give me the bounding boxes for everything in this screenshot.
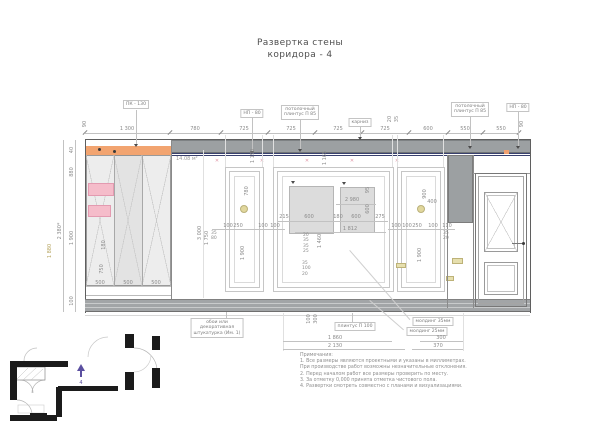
dim-label: 110 xyxy=(442,223,452,229)
pier-edge xyxy=(473,155,474,308)
leader-arrow xyxy=(342,182,346,185)
door-handle-leader xyxy=(512,243,522,244)
callout-np80-right: НП - 80 xyxy=(506,103,529,112)
callout-molding35: молдинг 35мм xyxy=(412,317,453,326)
rod-bracket-mark xyxy=(98,148,101,151)
dim-label: 250 xyxy=(233,223,243,229)
wall-area-label: 14.08 м² xyxy=(176,156,198,162)
wardrobe-door xyxy=(114,155,142,286)
mirror-panel xyxy=(289,186,334,234)
curtain-hook-icon: ✕ xyxy=(215,159,219,164)
dim-label: 900 xyxy=(422,189,428,199)
dim-label: 1 900 xyxy=(240,246,246,260)
dim-label: 100 xyxy=(428,223,438,229)
dim-label: 100 xyxy=(402,223,412,229)
view-direction-arrow xyxy=(77,364,85,371)
wall-right-edge xyxy=(530,139,531,313)
dim-label: 370 xyxy=(433,343,443,349)
dim-label: 725 xyxy=(239,126,249,132)
dim-label: 1 165 xyxy=(322,151,328,165)
curtain-hook-icon: ✕ xyxy=(350,159,354,164)
dim-label: 1 190 xyxy=(250,149,256,163)
rod-bracket-mark xyxy=(113,150,116,153)
dim-label: 600 xyxy=(351,214,361,220)
door-lower-panel xyxy=(484,262,518,295)
dim-label: 500 xyxy=(151,280,161,286)
dim-label: 1 900 xyxy=(69,231,75,245)
callout-np80: НП - 80 xyxy=(240,109,263,118)
wardrobe-plinth-line xyxy=(86,295,171,296)
notes-block: Примечания: 1. Все размеры являются прое… xyxy=(300,353,467,390)
dim-label: 215 xyxy=(279,214,289,220)
dim-label: 725 xyxy=(286,126,296,132)
dim-stack: 35 20 xyxy=(443,231,449,242)
dim-label: 1 460 xyxy=(317,234,323,248)
dim-stack: 35 100 20 xyxy=(302,261,311,277)
dim-label: 95 xyxy=(365,187,371,193)
dim-label: 90 xyxy=(82,121,88,127)
note-line: При производстве работ возможны незначит… xyxy=(300,365,467,371)
door-divider xyxy=(114,155,115,286)
dim-label: 300 xyxy=(313,314,319,324)
dim-label: 90 xyxy=(519,121,525,127)
dim-label: 750 xyxy=(99,264,105,274)
dim-label: 100 xyxy=(223,223,233,229)
dim-label: 550 xyxy=(496,126,506,132)
dim-label: 1 300 xyxy=(120,126,134,132)
dim-label: 550 xyxy=(460,126,470,132)
dim-label: 100 xyxy=(306,314,312,324)
dim-label: 100 xyxy=(391,223,401,229)
page-title: Развертка стены xyxy=(257,38,343,48)
baseboard-band xyxy=(85,299,530,312)
dim-stack: 20 35 35 25 xyxy=(303,233,309,255)
callout-cornice: карниз xyxy=(349,118,372,127)
dim-label: 1 900 xyxy=(417,248,423,262)
dim-label: 780 xyxy=(244,186,250,196)
wardrobe-dim-line xyxy=(86,286,171,287)
curtain-hook-icon: ✕ xyxy=(305,159,309,164)
dim-stack: 35 80 xyxy=(211,231,217,242)
door-divider xyxy=(142,155,143,286)
dim-label: 100 xyxy=(69,296,75,306)
drawing-sheet: Развертка стены коридора - 4 14.08 м² ✕ … xyxy=(0,0,600,437)
page-subtitle: коридора - 4 xyxy=(268,50,333,60)
sconce-symbol xyxy=(417,205,425,213)
dim-label: 1 812 xyxy=(343,226,357,232)
dim-label: 300 xyxy=(436,335,446,341)
dim-label: 780 xyxy=(190,126,200,132)
dim-label: 400 xyxy=(427,199,437,205)
dim-label: 500 xyxy=(95,280,105,286)
dim-label: 20 xyxy=(387,116,393,122)
material-tag xyxy=(396,263,406,268)
callout-wallpaper: обои или декоративная штукатурка (Им. 1) xyxy=(191,318,244,338)
dim-label: 600 xyxy=(304,214,314,220)
dim-label: 880 xyxy=(69,167,75,177)
dim-label: 100 xyxy=(270,223,280,229)
dim-label: 3 000 xyxy=(197,226,203,240)
wall-pier xyxy=(448,155,473,223)
dim-label: 725 xyxy=(333,126,343,132)
dim-label: 100 xyxy=(258,223,268,229)
mirror-insert xyxy=(88,183,114,196)
callout-pk130: ПК - 130 xyxy=(123,100,149,109)
dim-label: 250 xyxy=(412,223,422,229)
dim-label: 600 xyxy=(423,126,433,132)
top-dim-line xyxy=(85,133,519,134)
callout-ceiling-plinth-right: потолочный плинтус П 85 xyxy=(451,102,489,117)
dim-label: 180 xyxy=(101,240,107,250)
dim-label: 500 xyxy=(123,280,133,286)
dim-label: 40 xyxy=(69,147,75,153)
floor-plan: 4 xyxy=(8,333,160,435)
mirror-insert xyxy=(88,205,111,217)
dim-label: 725 xyxy=(380,126,390,132)
dim-label: 2 380* xyxy=(57,223,63,240)
sconce-symbol xyxy=(240,205,248,213)
dim-label: 35 xyxy=(394,116,400,122)
note-line: 2. Перед началом работ все размеры прове… xyxy=(300,372,467,378)
dim-label-highlighted: 1 880 xyxy=(47,244,53,258)
dim-label: 1 750 xyxy=(204,231,210,245)
door-handle xyxy=(522,242,525,245)
dim-label: 2 980 xyxy=(345,197,359,203)
dim-label: 275 xyxy=(375,214,385,220)
dim-label: 2 130 xyxy=(328,343,342,349)
material-tag xyxy=(452,258,463,264)
wardrobe-door xyxy=(142,155,171,286)
callout-ceiling-plinth: потолочный плинтус П 85 xyxy=(281,105,319,120)
wardrobe-right-edge xyxy=(171,140,172,299)
dim-label: 600 xyxy=(365,204,371,214)
header-tag xyxy=(504,150,509,154)
note-line: 4. Развертки смотреть совместно с планам… xyxy=(300,384,467,390)
leader-arrow xyxy=(291,181,295,184)
view-number-label: 4 xyxy=(79,380,82,386)
dim-label: 1 860 xyxy=(328,335,342,341)
callout-plinth: плинтус П 100 xyxy=(335,322,376,331)
dim-label: 180 xyxy=(333,214,343,220)
